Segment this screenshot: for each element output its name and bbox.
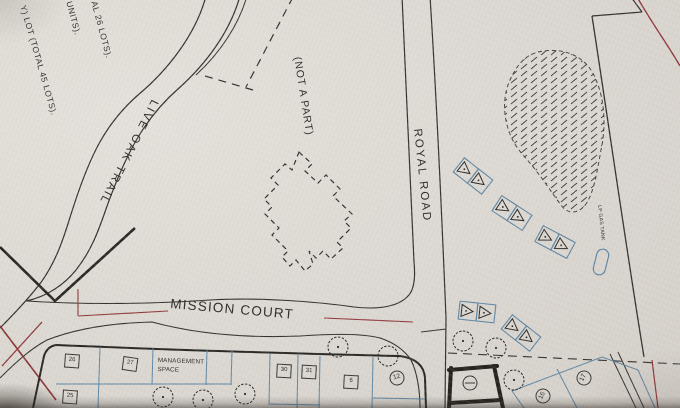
lp-gas-tank-label: LP GAS TANK — [596, 205, 606, 241]
label-layer: AL 26 LOTS). UNITS). Y) LOT (TOTAL 45 LO… — [0, 0, 680, 408]
management-space-line-2: SPACE — [157, 365, 204, 375]
plan-note-line-1: AL 26 LOTS). — [89, 0, 114, 59]
street-label-mission-court: MISSION COURT — [170, 296, 295, 322]
street-label-royal-road: ROYAL ROAD — [411, 128, 433, 223]
plan-note-line-2: UNITS). — [64, 0, 83, 36]
not-a-part-label: (NOT A PART) — [291, 56, 315, 137]
management-space-label: MANAGEMENT SPACE — [157, 357, 204, 376]
street-label-live-oak-trail: LIVE OAK TRAIL — [97, 98, 160, 207]
plan-note-line-3: Y) LOT (TOTAL 45 LOTS). — [18, 4, 59, 116]
site-plan-photo: 26272530316121617 AL 26 LOTS). UNITS). Y… — [0, 0, 680, 408]
